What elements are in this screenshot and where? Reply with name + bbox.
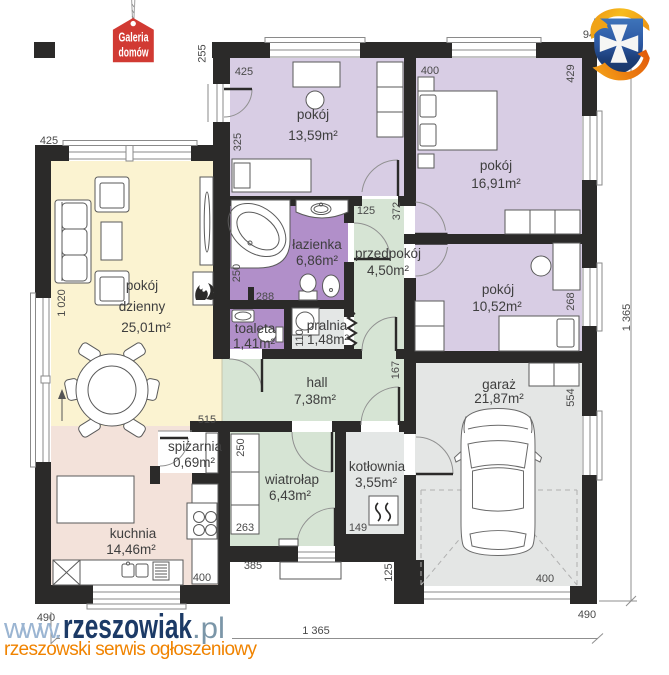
svg-text:0,69m²: 0,69m² [173, 455, 216, 470]
svg-text:425: 425 [235, 66, 253, 78]
svg-text:pokój: pokój [126, 278, 158, 293]
svg-text:110: 110 [294, 329, 306, 347]
svg-text:554: 554 [565, 388, 577, 406]
svg-text:1 020: 1 020 [56, 289, 68, 317]
svg-text:125: 125 [383, 563, 395, 581]
svg-text:przedpokój: przedpokój [355, 246, 421, 261]
svg-text:263: 263 [236, 522, 254, 534]
svg-text:hall: hall [306, 375, 327, 390]
svg-text:25,01m²: 25,01m² [121, 320, 171, 335]
svg-text:toaleta: toaleta [235, 321, 276, 336]
svg-text:385: 385 [244, 560, 262, 572]
svg-text:kuchnia: kuchnia [110, 526, 157, 541]
svg-text:288: 288 [256, 291, 274, 303]
svg-text:167: 167 [390, 361, 402, 379]
svg-text:4,50m²: 4,50m² [367, 263, 410, 278]
svg-text:spiżarnia: spiżarnia [168, 439, 223, 454]
svg-text:1,48m²: 1,48m² [307, 332, 350, 347]
svg-text:250: 250 [231, 264, 243, 282]
svg-text:400: 400 [193, 572, 211, 584]
svg-text:425: 425 [40, 135, 58, 147]
svg-text:429: 429 [565, 64, 577, 82]
svg-text:1,41m²: 1,41m² [233, 336, 276, 351]
svg-text:pokój: pokój [480, 158, 512, 173]
svg-text:13,59m²: 13,59m² [288, 128, 338, 143]
svg-text:6,43m²: 6,43m² [269, 488, 312, 503]
svg-text:21,87m²: 21,87m² [474, 391, 524, 406]
svg-text:268: 268 [565, 292, 577, 310]
svg-text:kotłownia: kotłownia [349, 459, 406, 474]
svg-text:250: 250 [235, 438, 247, 456]
svg-text:3,55m²: 3,55m² [355, 475, 398, 490]
svg-text:400: 400 [421, 65, 439, 77]
svg-text:515: 515 [198, 414, 216, 426]
svg-text:Galeria: Galeria [119, 30, 150, 45]
svg-text:255: 255 [197, 44, 209, 62]
svg-text:1 365: 1 365 [302, 625, 330, 637]
svg-text:325: 325 [232, 133, 244, 151]
svg-text:16,91m²: 16,91m² [471, 176, 521, 191]
svg-text:125: 125 [357, 205, 375, 217]
svg-text:6,86m²: 6,86m² [296, 253, 339, 268]
svg-text:rzeszowski serwis ogłoszeniowy: rzeszowski serwis ogłoszeniowy [4, 639, 258, 660]
svg-text:pokój: pokój [482, 282, 514, 297]
svg-text:372: 372 [391, 202, 403, 220]
svg-text:149: 149 [349, 522, 367, 534]
svg-text:7,38m²: 7,38m² [294, 392, 337, 407]
svg-text:10,52m²: 10,52m² [472, 299, 522, 314]
svg-text:dzienny: dzienny [119, 299, 166, 314]
svg-text:garaż: garaż [482, 377, 516, 392]
svg-text:pralnia: pralnia [307, 318, 348, 333]
svg-text:400: 400 [536, 573, 554, 585]
svg-text:wiatrołap: wiatrołap [264, 472, 319, 487]
svg-text:490: 490 [578, 609, 596, 621]
svg-text:łazienka: łazienka [292, 237, 342, 252]
svg-text:domów: domów [119, 45, 150, 60]
svg-text:14,46m²: 14,46m² [106, 542, 156, 557]
svg-text:pokój: pokój [297, 107, 329, 122]
